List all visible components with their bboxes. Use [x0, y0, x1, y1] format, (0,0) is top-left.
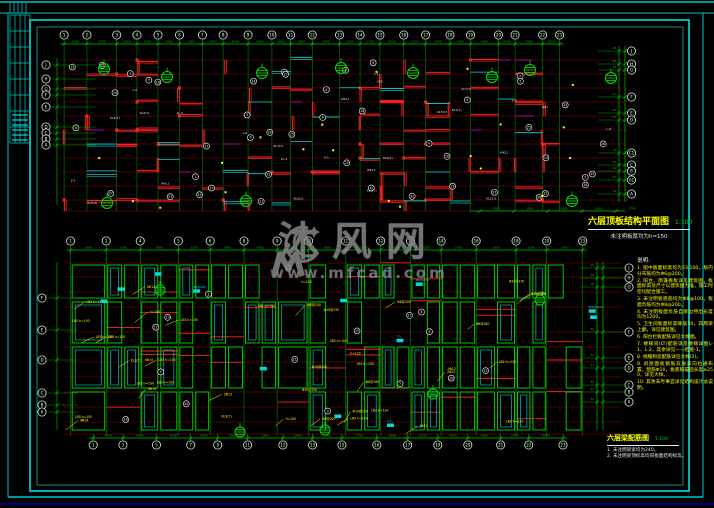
svg-text:2: 2 — [105, 239, 108, 244]
svg-text:20: 20 — [544, 239, 550, 244]
svg-text:LB3 h=100: LB3 h=100 — [96, 335, 113, 339]
svg-text:B: B — [628, 390, 631, 395]
svg-text:4200: 4200 — [257, 246, 265, 250]
svg-text:KL3(7): KL3(7) — [221, 414, 231, 418]
svg-text:3000: 3000 — [85, 246, 93, 250]
svg-text:LB2 h=120: LB2 h=120 — [371, 408, 388, 412]
svg-text:20: 20 — [268, 131, 272, 135]
svg-text:2000: 2000 — [277, 40, 285, 44]
svg-text:J: J — [630, 49, 632, 54]
svg-text:4200: 4200 — [232, 40, 240, 44]
svg-text:39: 39 — [612, 148, 616, 152]
svg-text:C: C — [41, 391, 44, 396]
svg-text:23: 23 — [560, 443, 566, 448]
svg-text:1: 1 — [63, 33, 66, 38]
svg-text:1800: 1800 — [526, 207, 534, 211]
svg-text:3000: 3000 — [388, 40, 396, 44]
svg-text:B: B — [41, 403, 44, 408]
svg-text:15: 15 — [590, 172, 594, 176]
svg-text:KL7(7): KL7(7) — [461, 87, 471, 91]
svg-text:2Φ12: 2Φ12 — [419, 424, 427, 428]
svg-text:WKL1: WKL1 — [367, 168, 376, 172]
svg-text:11: 11 — [259, 200, 263, 204]
svg-text:Y-1: Y-1 — [154, 268, 159, 272]
svg-text:9: 9 — [428, 142, 430, 146]
svg-text:13: 13 — [408, 239, 414, 244]
svg-text:2700: 2700 — [455, 246, 463, 250]
svg-text:Φ8@200: Φ8@200 — [193, 285, 206, 289]
svg-text:9: 9 — [249, 136, 251, 140]
svg-text:16: 16 — [401, 33, 407, 38]
top-plan-callouts: 2225102720227153493227152714251423111722… — [69, 60, 611, 209]
bottom-plan-scale: 1:100 — [655, 437, 668, 442]
svg-text:L-6: L-6 — [243, 131, 248, 135]
svg-text:Φ10@200: Φ10@200 — [302, 388, 317, 392]
svg-text:WKL1: WKL1 — [341, 97, 350, 101]
note-item: 3. 未注明板底筋均为Φ8@100，板面负筋均为Φ8@200。 — [637, 297, 713, 308]
svg-text:8: 8 — [421, 310, 423, 314]
top-plan-title-block: 六层顶板结构平面图1:100 未注明板厚均为h=150 — [588, 209, 690, 240]
svg-text:21: 21 — [590, 387, 594, 391]
svg-text:Φ8@200: Φ8@200 — [322, 417, 335, 421]
svg-text:8: 8 — [75, 126, 77, 130]
svg-text:LB5 h=100: LB5 h=100 — [158, 358, 175, 362]
svg-text:2100: 2100 — [411, 40, 419, 44]
svg-text:1800: 1800 — [359, 246, 367, 250]
svg-text:39: 39 — [590, 397, 594, 401]
note-item: 4. 未注明板面负筋自梁边伸出长度均为1200。 — [637, 310, 713, 321]
note-item: 9. 斜屋面板钢筋双层双向拉通布置，配筋Φ10，板底筋锚固长度≥250，详见大样… — [637, 362, 713, 379]
svg-text:11: 11 — [343, 239, 349, 244]
svg-text:Y-1: Y-1 — [396, 334, 401, 338]
svg-text:2400: 2400 — [481, 40, 489, 44]
bottom-plan-top-axes: 1300022100439005150062400842009290010200… — [67, 237, 587, 255]
svg-text:D: D — [627, 366, 630, 371]
svg-text:H: H — [44, 77, 47, 82]
cad-drawing-viewport: 1330022700330004210053900615007240084200… — [0, 0, 714, 508]
svg-text:25: 25 — [527, 126, 531, 130]
svg-text:12: 12 — [543, 192, 547, 196]
svg-text:8: 8 — [243, 239, 246, 244]
svg-text:11: 11 — [293, 358, 297, 362]
svg-text:2100: 2100 — [119, 246, 127, 250]
svg-text:Φ10@200: Φ10@200 — [312, 365, 327, 369]
svg-text:16: 16 — [156, 80, 160, 84]
svg-text:27: 27 — [168, 195, 172, 199]
svg-text:11: 11 — [288, 33, 294, 38]
svg-text:WKL1: WKL1 — [500, 150, 509, 154]
note-item: 1. 图中板面标高均为23.100，板内分布筋均为Φ6@200。 — [637, 266, 713, 277]
svg-text:J: J — [44, 63, 46, 68]
svg-text:LB3 h=100: LB3 h=100 — [157, 380, 174, 384]
svg-text:LB2 h=120: LB2 h=120 — [499, 360, 516, 364]
svg-text:13: 13 — [166, 315, 170, 319]
svg-text:25: 25 — [345, 161, 349, 165]
svg-text:18: 18 — [513, 239, 519, 244]
svg-text:3600: 3600 — [322, 40, 330, 44]
svg-text:3900: 3900 — [561, 246, 569, 250]
svg-text:7: 7 — [189, 443, 192, 448]
svg-text:1800: 1800 — [298, 40, 306, 44]
svg-text:2400: 2400 — [223, 246, 231, 250]
svg-text:42: 42 — [612, 175, 616, 179]
svg-text:10: 10 — [269, 33, 275, 38]
bottom-plan: 1300022100439005150062400842009290010200… — [38, 237, 633, 449]
svg-text:2Φ12: 2Φ12 — [147, 285, 155, 289]
svg-text:A1: A1 — [629, 178, 635, 183]
svg-text:16: 16 — [583, 183, 587, 187]
svg-text:33: 33 — [590, 353, 594, 357]
svg-text:2900: 2900 — [256, 40, 264, 44]
svg-text:KL5(3): KL5(3) — [87, 201, 97, 205]
svg-text:1500: 1500 — [190, 246, 198, 250]
svg-text:Z-1: Z-1 — [71, 178, 76, 182]
svg-text:3900: 3900 — [155, 246, 163, 250]
svg-text:2700: 2700 — [366, 40, 374, 44]
svg-text:18: 18 — [612, 46, 616, 50]
note-item: 6. 阳台栏板配筋详见大样图。 — [637, 335, 713, 341]
svg-text:2: 2 — [129, 72, 131, 76]
svg-text:2400: 2400 — [209, 40, 217, 44]
svg-text:3300: 3300 — [72, 40, 80, 44]
title-underline — [588, 229, 690, 230]
bottom-note-line: 2. 未注明梁顶标高均同板面结构标高。 — [607, 454, 679, 460]
svg-text:18: 18 — [360, 109, 364, 113]
svg-text:6: 6 — [178, 33, 181, 38]
svg-text:KL5(3): KL5(3) — [437, 110, 447, 114]
bottom-plan-right-axes: J29H20G18F36E33D27C30B21A39 — [580, 262, 633, 430]
svg-text:2Φ12: 2Φ12 — [448, 367, 456, 371]
svg-text:4200: 4200 — [542, 434, 550, 438]
svg-text:Φ10@150: Φ10@150 — [353, 410, 368, 414]
svg-text:1: 1 — [195, 175, 197, 179]
svg-text:B: B — [630, 169, 633, 174]
svg-text:2100: 2100 — [144, 40, 152, 44]
svg-text:14: 14 — [113, 91, 117, 95]
svg-text:2Φ12: 2Φ12 — [224, 392, 232, 396]
svg-text:H: H — [627, 276, 630, 281]
top-plan-left-axes: JHGFEDCBA — [42, 58, 96, 205]
note-item: 10. 其余未尽事宜详见结构设计总说明。 — [637, 380, 713, 391]
svg-text:KL2(7): KL2(7) — [140, 111, 150, 115]
svg-text:3300: 3300 — [323, 434, 331, 438]
svg-text:15: 15 — [612, 160, 616, 164]
svg-text:27: 27 — [612, 92, 616, 96]
svg-text:C1: C1 — [629, 151, 635, 156]
svg-text:36: 36 — [612, 59, 616, 63]
svg-text:3900: 3900 — [434, 40, 442, 44]
svg-text:LB5 h=100: LB5 h=100 — [137, 382, 154, 386]
svg-text:LB5 h=100: LB5 h=100 — [181, 318, 198, 322]
svg-text:Φ10@200: Φ10@200 — [589, 305, 604, 309]
top-plan-axes: 1330022700330004210053900615007240084200… — [60, 31, 564, 46]
svg-text:4: 4 — [139, 239, 142, 244]
top-plan-scale: 1:100 — [675, 219, 692, 226]
svg-text:2700: 2700 — [98, 40, 106, 44]
svg-text:6: 6 — [322, 116, 324, 120]
svg-text:30: 30 — [590, 380, 594, 384]
svg-text:17: 17 — [408, 314, 412, 318]
svg-text:2000: 2000 — [323, 246, 331, 250]
svg-text:1: 1 — [92, 443, 95, 448]
svg-text:2000: 2000 — [492, 207, 500, 211]
svg-text:C: C — [628, 383, 631, 388]
svg-text:18: 18 — [124, 418, 128, 422]
svg-text:LB5 h=100: LB5 h=100 — [72, 319, 89, 323]
svg-text:16: 16 — [474, 239, 480, 244]
svg-text:A: A — [45, 143, 48, 148]
svg-text:27: 27 — [284, 72, 288, 76]
svg-text:D: D — [630, 118, 633, 123]
svg-text:Φ8@100: Φ8@100 — [307, 303, 320, 307]
svg-text:2400: 2400 — [136, 434, 144, 438]
svg-text:G: G — [630, 68, 633, 73]
note-item: 8. 挑檐构造配筋详见大样(2)。 — [637, 355, 713, 361]
svg-text:29: 29 — [590, 263, 594, 267]
svg-text:3900: 3900 — [165, 40, 173, 44]
svg-text:GZ1: GZ1 — [542, 105, 548, 109]
svg-text:KL9(1): KL9(1) — [294, 197, 304, 201]
svg-text:9: 9 — [247, 33, 250, 38]
svg-text:23: 23 — [198, 193, 202, 197]
svg-text:J: J — [627, 266, 629, 271]
top-plan-right-axes: J18H36G33F27E30D21C139C15B24A142A29 — [598, 46, 636, 202]
note-item: 2. 阳台、雨篷挑板详见建筑图，板面标高及尺寸以建筑图为准，施工时密切配合施工。 — [637, 279, 713, 296]
svg-text:33: 33 — [612, 65, 616, 69]
svg-text:14: 14 — [439, 239, 445, 244]
svg-text:4: 4 — [325, 88, 327, 92]
svg-text:19: 19 — [468, 33, 474, 38]
svg-text:12: 12 — [280, 443, 286, 448]
svg-text:21: 21 — [498, 443, 504, 448]
svg-text:6: 6 — [428, 330, 430, 334]
svg-text:9: 9 — [466, 98, 468, 102]
svg-text:17: 17 — [405, 443, 411, 448]
bottom-plan-bottom-axes: 1150032400542007290092000111800123600133… — [89, 434, 567, 450]
svg-text:Z-1: Z-1 — [324, 156, 329, 160]
svg-text:1500: 1500 — [104, 434, 112, 438]
svg-text:1800: 1800 — [261, 434, 269, 438]
svg-text:3000: 3000 — [492, 246, 500, 250]
svg-text:LL-3: LL-3 — [281, 157, 287, 161]
svg-text:7: 7 — [148, 78, 150, 82]
svg-text:LL-3: LL-3 — [177, 111, 183, 115]
svg-text:h=120: h=120 — [350, 351, 360, 355]
svg-text:LB5 h=100: LB5 h=100 — [75, 415, 92, 419]
svg-text:1500: 1500 — [456, 40, 464, 44]
svg-text:A: A — [630, 192, 633, 197]
svg-text:7: 7 — [201, 33, 204, 38]
svg-text:17: 17 — [204, 144, 208, 148]
svg-text:Φ8@180: Φ8@180 — [476, 322, 489, 326]
svg-text:L-6: L-6 — [606, 127, 611, 131]
svg-text:26: 26 — [601, 142, 605, 146]
svg-text:LB5 h=100: LB5 h=100 — [330, 339, 347, 343]
svg-text:LB1 h=100: LB1 h=100 — [258, 304, 275, 308]
svg-text:23: 23 — [580, 239, 586, 244]
svg-text:14: 14 — [358, 33, 364, 38]
svg-text:22: 22 — [266, 173, 270, 177]
svg-text:27: 27 — [590, 363, 594, 367]
svg-text:22: 22 — [526, 443, 532, 448]
svg-text:27: 27 — [209, 186, 213, 190]
svg-text:1500: 1500 — [187, 40, 195, 44]
svg-text:WKL1: WKL1 — [161, 181, 170, 185]
top-plan-subtitle: 未注明板厚均为h=150 — [588, 232, 690, 240]
svg-text:Φ8@200: Φ8@200 — [416, 278, 429, 282]
svg-text:2000: 2000 — [229, 434, 237, 438]
svg-text:3600: 3600 — [294, 434, 302, 438]
svg-text:2900: 2900 — [289, 246, 297, 250]
svg-text:5: 5 — [177, 239, 180, 244]
svg-text:25: 25 — [290, 132, 294, 136]
svg-text:6: 6 — [209, 239, 212, 244]
svg-text:3600: 3600 — [392, 246, 400, 250]
svg-text:27: 27 — [109, 192, 113, 196]
svg-text:9: 9 — [372, 61, 374, 65]
svg-text:16: 16 — [374, 443, 380, 448]
svg-text:10: 10 — [449, 376, 453, 380]
top-plan-title: 六层顶板结构平面图 — [588, 217, 669, 227]
svg-text:2: 2 — [584, 176, 586, 180]
svg-text:h=100: h=100 — [150, 310, 160, 314]
svg-text:5: 5 — [399, 382, 401, 386]
svg-text:9: 9 — [160, 370, 162, 374]
svg-text:17: 17 — [423, 33, 429, 38]
svg-text:3300: 3300 — [422, 246, 430, 250]
svg-text:18: 18 — [590, 282, 594, 286]
svg-text:11: 11 — [286, 266, 290, 270]
svg-text:Φ10@150: Φ10@150 — [324, 308, 339, 312]
svg-text:20: 20 — [590, 273, 594, 277]
svg-text:13: 13 — [310, 443, 316, 448]
svg-text:Φ8@180: Φ8@180 — [366, 380, 379, 384]
svg-text:3600: 3600 — [560, 207, 568, 211]
bottom-plan-notes: 1. 未注明梁宽均为240。2. 未注明梁顶标高均同板面结构标高。 — [607, 448, 679, 460]
svg-text:Φ8@200: Φ8@200 — [397, 300, 410, 304]
svg-text:A: A — [41, 410, 44, 415]
general-notes-block: 说明: 1. 图中板面标高均为23.100，板内分布筋均为Φ6@200。2. 阳… — [637, 256, 713, 393]
svg-text:15: 15 — [70, 65, 74, 69]
svg-text:2000: 2000 — [547, 40, 555, 44]
svg-text:Φ10@150: Φ10@150 — [509, 279, 524, 283]
svg-text:2: 2 — [519, 74, 521, 78]
svg-text:12: 12 — [378, 239, 384, 244]
svg-text:3: 3 — [246, 113, 248, 117]
svg-text:9: 9 — [216, 443, 219, 448]
svg-text:2: 2 — [86, 33, 89, 38]
svg-text:21: 21 — [612, 115, 616, 119]
svg-text:15: 15 — [355, 329, 359, 333]
svg-text:L-6: L-6 — [133, 88, 138, 92]
svg-text:GZ1: GZ1 — [377, 80, 383, 84]
note-item: 5. 卫生间板面标高降低50，四周梁上翻，详见建筑图。 — [637, 322, 713, 333]
svg-text:12: 12 — [484, 369, 488, 373]
svg-text:26: 26 — [537, 196, 541, 200]
svg-text:KL9(1): KL9(1) — [383, 156, 393, 160]
svg-text:18: 18 — [447, 33, 453, 38]
svg-text:KL3(7): KL3(7) — [131, 359, 141, 363]
svg-text:14: 14 — [544, 156, 548, 160]
svg-text:G: G — [627, 285, 630, 290]
svg-text:2700: 2700 — [356, 434, 364, 438]
svg-text:12: 12 — [310, 33, 316, 38]
svg-text:LB2 h=120: LB2 h=120 — [506, 420, 523, 424]
svg-text:4200: 4200 — [503, 40, 511, 44]
svg-text:20: 20 — [465, 443, 471, 448]
title-underline — [607, 445, 679, 446]
bottom-plan-detail-circles — [155, 281, 545, 437]
svg-text:1: 1 — [207, 292, 209, 296]
svg-text:1500: 1500 — [480, 434, 488, 438]
notes-heading: 说明: — [637, 256, 713, 264]
top-plan: 1330022700330004210053900615007240084200… — [42, 31, 636, 213]
svg-text:LB3 h=100: LB3 h=100 — [357, 362, 374, 366]
svg-text:h=100: h=100 — [286, 417, 296, 421]
svg-text:23: 23 — [557, 33, 563, 38]
svg-text:21: 21 — [513, 33, 519, 38]
svg-text:4: 4 — [136, 33, 139, 38]
svg-text:KL1(7): KL1(7) — [110, 116, 120, 120]
bottom-plan-title-block: 六层梁配筋图1:100 1. 未注明梁宽均为240。2. 未注明梁顶标高均同板面… — [607, 425, 679, 460]
svg-text:19: 19 — [435, 443, 441, 448]
svg-text:10: 10 — [445, 155, 449, 159]
svg-text:4200: 4200 — [170, 434, 178, 438]
svg-text:2900: 2900 — [525, 40, 533, 44]
bottom-plan-rooms — [72, 265, 581, 430]
svg-text:A: A — [628, 400, 631, 405]
svg-text:15: 15 — [451, 184, 455, 188]
svg-text:L-6: L-6 — [512, 99, 517, 103]
svg-text:3900: 3900 — [449, 434, 457, 438]
svg-text:2100: 2100 — [419, 434, 427, 438]
svg-text:KL2(7): KL2(7) — [367, 189, 377, 193]
svg-text:15: 15 — [377, 33, 383, 38]
svg-text:4Φ14: 4Φ14 — [145, 358, 153, 362]
svg-text:32: 32 — [410, 194, 414, 198]
svg-text:11: 11 — [245, 443, 251, 448]
svg-text:KL2(7): KL2(7) — [486, 197, 496, 201]
svg-text:2400: 2400 — [511, 434, 519, 438]
binding-strip — [10, 15, 30, 143]
svg-text:KL7(7): KL7(7) — [273, 144, 283, 148]
svg-text:22: 22 — [540, 33, 546, 38]
svg-text:D: D — [40, 358, 43, 363]
svg-text:30: 30 — [612, 108, 616, 112]
svg-text:KL2(7): KL2(7) — [452, 108, 462, 112]
svg-text:36: 36 — [590, 327, 594, 331]
svg-text:20: 20 — [184, 402, 188, 406]
svg-text:3300: 3300 — [346, 40, 354, 44]
svg-text:13: 13 — [337, 33, 343, 38]
svg-text:29: 29 — [612, 189, 616, 193]
bottom-plan-labels: Φ8@200LB2 h=120LB5 h=1002Φ12Φ10@200Φ10@1… — [66, 265, 604, 434]
svg-text:h=120: h=120 — [301, 280, 311, 284]
svg-text:2900: 2900 — [200, 434, 208, 438]
svg-text:5: 5 — [519, 79, 521, 83]
svg-text:LB5 h=100: LB5 h=100 — [350, 416, 367, 420]
svg-text:4Φ14: 4Φ14 — [80, 419, 88, 423]
bottom-plan-title: 六层梁配筋图 — [607, 434, 649, 442]
svg-text:15: 15 — [339, 443, 345, 448]
svg-text:3000: 3000 — [388, 434, 396, 438]
svg-text:3000: 3000 — [123, 40, 131, 44]
svg-text:3: 3 — [327, 409, 329, 413]
svg-text:14: 14 — [252, 79, 256, 83]
notes-list: 1. 图中板面标高均为23.100，板内分布筋均为Φ6@200。2. 阳台、雨篷… — [637, 266, 713, 391]
svg-text:Y-1: Y-1 — [387, 419, 392, 423]
svg-text:27: 27 — [492, 190, 496, 194]
